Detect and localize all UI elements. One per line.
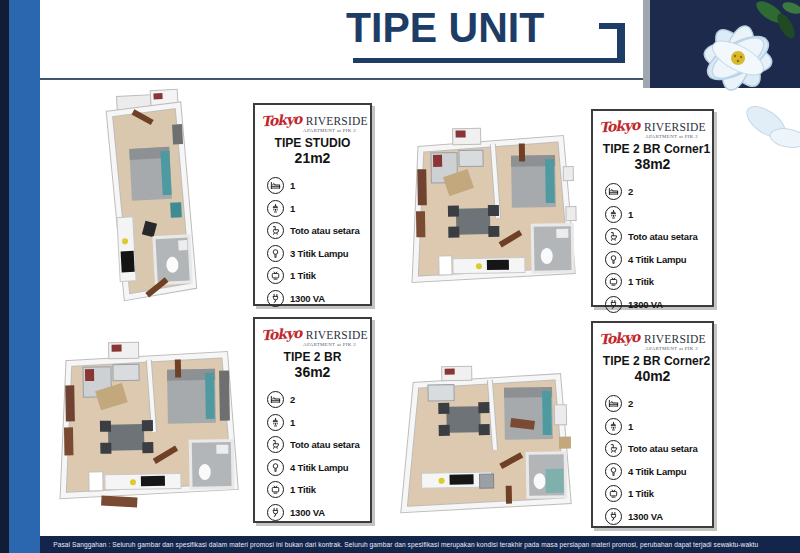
spec-label: 3 Titik Lampu: [290, 248, 348, 259]
spec-label: 2: [628, 398, 633, 409]
spec-row-power: 1300 VA: [605, 508, 706, 525]
bed-icon: [267, 177, 284, 194]
toilet-icon: [267, 436, 284, 453]
spec-label: 2: [628, 186, 633, 197]
unit-name: TIPE 2 BR Corner2: [603, 353, 703, 368]
bed-icon: [267, 391, 284, 408]
spec-label: 1: [290, 417, 295, 428]
spec-row-bathroom: 1: [267, 414, 364, 431]
tv-icon: [267, 267, 284, 284]
spec-label: 1300 VA: [290, 507, 325, 518]
spec-row-power: 1300 VA: [605, 296, 706, 313]
spec-row-sanitary: Toto atau setara: [267, 222, 364, 239]
spec-row-lighting: 3 Titik Lampu: [267, 245, 364, 262]
brand-logo: Tokyo RIVERSIDE: [261, 327, 364, 342]
spec-label: Toto atau setara: [628, 443, 697, 454]
brand-serif: RIVERSIDE: [644, 121, 706, 133]
spec-row-bedroom: 2: [605, 395, 706, 412]
spec-label: Toto atau setara: [290, 225, 359, 236]
brand-logo: Tokyo RIVERSIDE: [261, 113, 364, 128]
left-blue-bar: [9, 0, 40, 553]
spec-label: 4 Titik Lampu: [628, 254, 686, 265]
unit-size: 38m2: [599, 156, 706, 172]
brand-serif: RIVERSIDE: [306, 115, 368, 127]
brand-script: Tokyo: [599, 118, 640, 135]
unit-card-studio: Tokyo RIVERSIDE APARTMENT at PIK 2 TIPE …: [253, 103, 372, 306]
lamp-icon: [267, 245, 284, 262]
spec-row-power: 1300 VA: [267, 290, 364, 307]
spec-row-sanitary: Toto atau setara: [605, 228, 706, 245]
spec-row-bathroom: 1: [605, 206, 706, 223]
spec-row-bathroom: 1: [267, 200, 364, 217]
spec-label: 1: [628, 209, 633, 220]
bed-icon: [605, 395, 622, 412]
page-title: TIPE UNIT: [346, 4, 606, 53]
tv-icon: [605, 485, 622, 502]
spec-list: 2 1 Toto atau setara 4 Titik Lampu 1 Tit…: [599, 395, 706, 525]
power-plug-icon: [605, 296, 622, 313]
brochure-page: TIPE UNIT: [0, 0, 800, 553]
spec-row-tv-point: 1 Titik: [605, 273, 706, 290]
toilet-icon: [605, 228, 622, 245]
toilet-icon: [605, 440, 622, 457]
brand-subtitle: APARTMENT at PIK 2: [261, 128, 356, 133]
unit-card-2br-corner1: Tokyo RIVERSIDE APARTMENT at PIK 2 TIPE …: [591, 109, 714, 307]
unit-size: 40m2: [599, 368, 706, 384]
spec-list: 2 1 Toto atau setara 4 Titik Lampu 1 Tit…: [599, 183, 706, 313]
tv-icon: [605, 273, 622, 290]
unit-name: TIPE STUDIO: [265, 135, 361, 150]
spec-label: 1 Titik: [290, 270, 316, 281]
spec-label: 1300 VA: [628, 299, 663, 310]
floorplan-2br-corner1-image: [394, 110, 590, 316]
disclaimer-bar: Pasal Sanggahan : Seluruh gambar dan spe…: [40, 536, 800, 553]
floorplan-2br-image: [44, 328, 256, 528]
unit-name: TIPE 2 BR: [265, 349, 361, 364]
spec-row-sanitary: Toto atau setara: [605, 440, 706, 457]
power-plug-icon: [605, 508, 622, 525]
spec-list: 1 1 Toto atau setara 3 Titik Lampu 1 Tit…: [261, 177, 364, 307]
brand-subtitle: APARTMENT at PIK 2: [599, 134, 698, 139]
left-dark-strip: [0, 0, 9, 553]
spec-label: Toto atau setara: [290, 439, 359, 450]
spec-row-tv-point: 1 Titik: [605, 485, 706, 502]
unit-name: TIPE 2 BR Corner1: [603, 141, 703, 156]
brand-serif: RIVERSIDE: [306, 329, 368, 341]
brand-script: Tokyo: [599, 330, 640, 347]
brand-logo: Tokyo RIVERSIDE: [599, 331, 706, 346]
brand-serif: RIVERSIDE: [644, 333, 706, 345]
brand-logo: Tokyo RIVERSIDE: [599, 119, 706, 134]
brand-script: Tokyo: [261, 326, 302, 343]
unit-card-2br: Tokyo RIVERSIDE APARTMENT at PIK 2 TIPE …: [253, 317, 372, 523]
spec-list: 2 1 Toto atau setara 4 Titik Lampu 1 Tit…: [261, 391, 364, 521]
spec-label: 1300 VA: [290, 293, 325, 304]
brand-subtitle: APARTMENT at PIK 2: [261, 342, 356, 347]
spec-row-sanitary: Toto atau setara: [267, 436, 364, 453]
spec-row-bedroom: 2: [605, 183, 706, 200]
tv-icon: [267, 481, 284, 498]
spec-row-power: 1300 VA: [267, 504, 364, 521]
spec-label: 1300 VA: [628, 511, 663, 522]
flower-leaves: [753, 0, 800, 41]
spec-label: 1: [628, 421, 633, 432]
spec-row-tv-point: 1 Titik: [267, 267, 364, 284]
spec-label: Toto atau setara: [628, 231, 697, 242]
header-divider-line: [40, 78, 643, 80]
shower-icon: [267, 414, 284, 431]
spec-label: 1: [290, 180, 295, 191]
power-plug-icon: [267, 504, 284, 521]
unit-card-2br-corner2: Tokyo RIVERSIDE APARTMENT at PIK 2 TIPE …: [591, 321, 714, 528]
spec-label: 1: [290, 203, 295, 214]
spec-label: 1 Titik: [628, 276, 654, 287]
unit-size: 36m2: [261, 364, 364, 380]
disclaimer-text: Pasal Sanggahan : Seluruh gambar dan spe…: [40, 541, 758, 548]
power-plug-icon: [267, 290, 284, 307]
spec-row-lighting: 4 Titik Lampu: [605, 251, 706, 268]
toilet-icon: [267, 222, 284, 239]
spec-label: 4 Titik Lampu: [628, 466, 686, 477]
spec-row-bathroom: 1: [605, 418, 706, 435]
shower-icon: [267, 200, 284, 217]
spec-row-lighting: 4 Titik Lampu: [267, 459, 364, 476]
title-underline: [353, 58, 625, 63]
spec-label: 4 Titik Lampu: [290, 462, 348, 473]
bed-icon: [605, 183, 622, 200]
spec-row-bedroom: 2: [267, 391, 364, 408]
lamp-icon: [605, 251, 622, 268]
floorplan-studio-image: [52, 88, 244, 314]
spec-label: 1 Titik: [290, 484, 316, 495]
lamp-icon: [267, 459, 284, 476]
lamp-icon: [605, 463, 622, 480]
spec-row-lighting: 4 Titik Lampu: [605, 463, 706, 480]
spec-row-bedroom: 1: [267, 177, 364, 194]
spec-label: 1 Titik: [628, 488, 654, 499]
unit-size: 21m2: [261, 150, 364, 166]
title-bracket-side: [617, 23, 625, 61]
floorplan-2br-corner2-image: [387, 354, 593, 538]
shower-icon: [605, 206, 622, 223]
shower-icon: [605, 418, 622, 435]
brand-script: Tokyo: [261, 112, 302, 129]
brand-subtitle: APARTMENT at PIK 2: [599, 346, 698, 351]
spec-row-tv-point: 1 Titik: [267, 481, 364, 498]
spec-label: 2: [290, 394, 295, 405]
